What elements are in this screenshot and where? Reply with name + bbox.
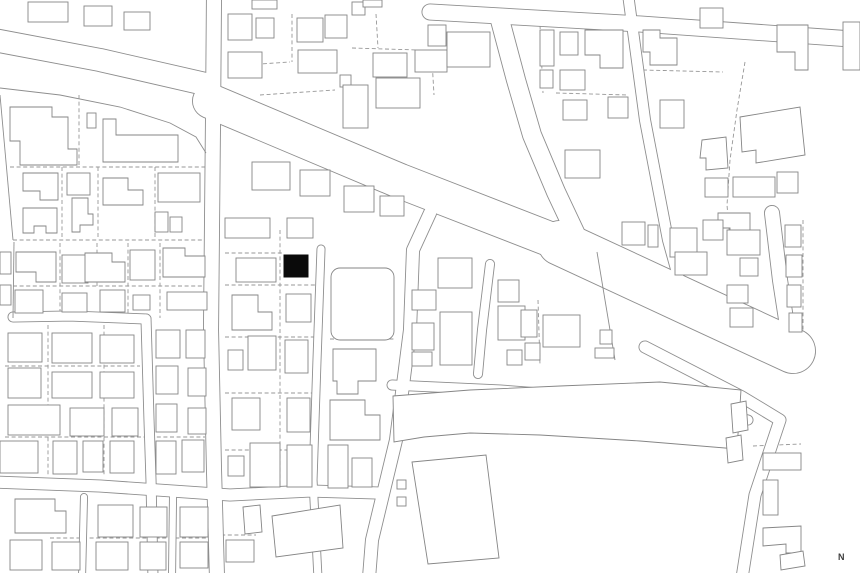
building bbox=[140, 542, 166, 570]
building bbox=[72, 198, 93, 232]
building bbox=[540, 30, 554, 66]
building bbox=[83, 441, 103, 472]
building bbox=[440, 312, 472, 365]
building bbox=[521, 310, 537, 337]
building bbox=[438, 258, 472, 288]
building bbox=[285, 340, 308, 373]
building bbox=[180, 542, 208, 568]
building bbox=[228, 52, 262, 78]
building bbox=[643, 30, 677, 65]
building bbox=[393, 382, 741, 449]
building bbox=[156, 330, 180, 358]
building bbox=[700, 137, 728, 170]
building bbox=[155, 212, 168, 232]
building bbox=[163, 248, 205, 277]
building bbox=[600, 330, 612, 344]
building bbox=[763, 453, 801, 470]
building bbox=[412, 323, 434, 350]
building bbox=[228, 14, 252, 40]
building bbox=[243, 505, 262, 534]
building bbox=[763, 526, 801, 553]
building bbox=[287, 398, 310, 432]
building bbox=[67, 173, 90, 195]
building bbox=[622, 222, 645, 245]
building bbox=[156, 404, 177, 432]
building bbox=[228, 456, 244, 476]
building bbox=[525, 343, 540, 360]
building bbox=[785, 225, 801, 247]
parcel-line bbox=[260, 90, 335, 95]
site-plan: N bbox=[0, 0, 860, 573]
building bbox=[10, 107, 77, 165]
building bbox=[180, 507, 208, 537]
building bbox=[156, 366, 178, 394]
building bbox=[100, 290, 125, 312]
road-street-topleft-diagonal bbox=[0, 40, 205, 84]
building bbox=[15, 499, 66, 533]
building bbox=[8, 405, 60, 435]
building bbox=[287, 218, 313, 238]
building bbox=[85, 253, 125, 282]
road-street-bottom-horizontal bbox=[0, 482, 378, 495]
building bbox=[328, 445, 348, 488]
parcel-line bbox=[556, 93, 628, 95]
building bbox=[373, 53, 407, 77]
parcel-line bbox=[643, 70, 723, 72]
building bbox=[700, 8, 723, 28]
building bbox=[226, 540, 254, 562]
building bbox=[225, 218, 270, 238]
building bbox=[100, 335, 134, 363]
building bbox=[560, 70, 585, 90]
building bbox=[167, 292, 207, 310]
building bbox=[286, 294, 311, 322]
building bbox=[727, 285, 748, 303]
building bbox=[330, 400, 380, 440]
building bbox=[232, 295, 272, 330]
building bbox=[170, 217, 182, 232]
building bbox=[763, 480, 778, 515]
building bbox=[186, 330, 205, 358]
building bbox=[133, 295, 150, 310]
building bbox=[16, 252, 56, 282]
building bbox=[648, 225, 658, 247]
building bbox=[130, 250, 155, 280]
building bbox=[380, 196, 404, 216]
building bbox=[140, 507, 167, 537]
building bbox=[428, 25, 446, 46]
building bbox=[0, 285, 11, 305]
building bbox=[498, 280, 519, 302]
building bbox=[188, 408, 206, 434]
building bbox=[585, 30, 623, 68]
building bbox=[560, 32, 578, 55]
building bbox=[62, 293, 87, 312]
building bbox=[343, 85, 368, 128]
building bbox=[740, 107, 805, 163]
building bbox=[397, 480, 406, 489]
building bbox=[23, 173, 58, 200]
building bbox=[777, 172, 798, 193]
building bbox=[786, 255, 802, 277]
building bbox=[777, 25, 808, 70]
building bbox=[124, 12, 150, 30]
building bbox=[331, 268, 394, 340]
building bbox=[272, 505, 343, 557]
building bbox=[158, 173, 200, 202]
building bbox=[100, 372, 134, 398]
building bbox=[84, 6, 112, 26]
building bbox=[787, 285, 801, 307]
building bbox=[236, 258, 276, 282]
building bbox=[53, 441, 77, 474]
building bbox=[98, 505, 133, 537]
parcel-line bbox=[376, 14, 378, 48]
building bbox=[256, 18, 274, 38]
building bbox=[595, 348, 614, 358]
building bbox=[705, 178, 728, 197]
building bbox=[228, 350, 243, 370]
building bbox=[252, 0, 277, 9]
building bbox=[248, 336, 276, 370]
parcel-line bbox=[352, 48, 418, 50]
building bbox=[733, 177, 775, 197]
building bbox=[412, 290, 436, 310]
building bbox=[843, 22, 860, 70]
building bbox=[780, 551, 805, 570]
building bbox=[726, 435, 743, 463]
building bbox=[188, 368, 206, 396]
building bbox=[156, 441, 176, 474]
site-plan-map-svg bbox=[0, 0, 860, 573]
building bbox=[325, 15, 347, 38]
building bbox=[8, 333, 42, 362]
building bbox=[103, 119, 178, 162]
building bbox=[507, 350, 522, 365]
road-lane-left-horizontal bbox=[13, 316, 146, 319]
building bbox=[112, 408, 138, 436]
building bbox=[10, 540, 42, 570]
building bbox=[52, 333, 92, 363]
building bbox=[608, 97, 628, 118]
building bbox=[15, 290, 43, 313]
building bbox=[182, 440, 204, 472]
building bbox=[344, 186, 374, 212]
building bbox=[363, 0, 382, 7]
building bbox=[412, 352, 432, 366]
building bbox=[70, 408, 104, 436]
building bbox=[52, 372, 92, 398]
building bbox=[397, 497, 406, 506]
building bbox=[28, 2, 68, 22]
building bbox=[52, 542, 80, 570]
building bbox=[675, 252, 707, 275]
building bbox=[87, 113, 96, 128]
building bbox=[232, 398, 260, 430]
building bbox=[8, 368, 41, 398]
building bbox=[415, 50, 447, 72]
building bbox=[298, 50, 337, 73]
building bbox=[740, 258, 758, 276]
building bbox=[727, 230, 760, 255]
building bbox=[565, 150, 600, 178]
road-street-southeast bbox=[645, 347, 780, 573]
building bbox=[789, 313, 802, 332]
road-alley-bottomleft-2 bbox=[172, 497, 173, 573]
building bbox=[412, 455, 499, 564]
building bbox=[376, 78, 420, 108]
building bbox=[543, 315, 580, 347]
building bbox=[0, 441, 38, 473]
building bbox=[540, 70, 553, 88]
building bbox=[447, 32, 490, 67]
building bbox=[297, 18, 323, 42]
building bbox=[96, 542, 128, 570]
building bbox=[660, 100, 684, 128]
building bbox=[703, 220, 723, 240]
site-marker bbox=[284, 255, 308, 277]
north-label: N bbox=[838, 553, 845, 562]
building bbox=[352, 458, 372, 487]
building bbox=[62, 255, 88, 283]
building bbox=[110, 441, 134, 473]
road-alley-bottomleft-1 bbox=[82, 497, 84, 573]
building bbox=[103, 178, 143, 205]
building bbox=[333, 349, 376, 394]
building bbox=[287, 445, 312, 487]
building bbox=[731, 401, 748, 433]
block-boundary bbox=[13, 242, 14, 318]
building bbox=[0, 252, 11, 274]
building bbox=[252, 162, 290, 190]
building bbox=[23, 208, 57, 233]
building bbox=[730, 308, 753, 327]
building bbox=[300, 170, 330, 196]
building bbox=[563, 100, 587, 120]
building bbox=[250, 443, 280, 487]
